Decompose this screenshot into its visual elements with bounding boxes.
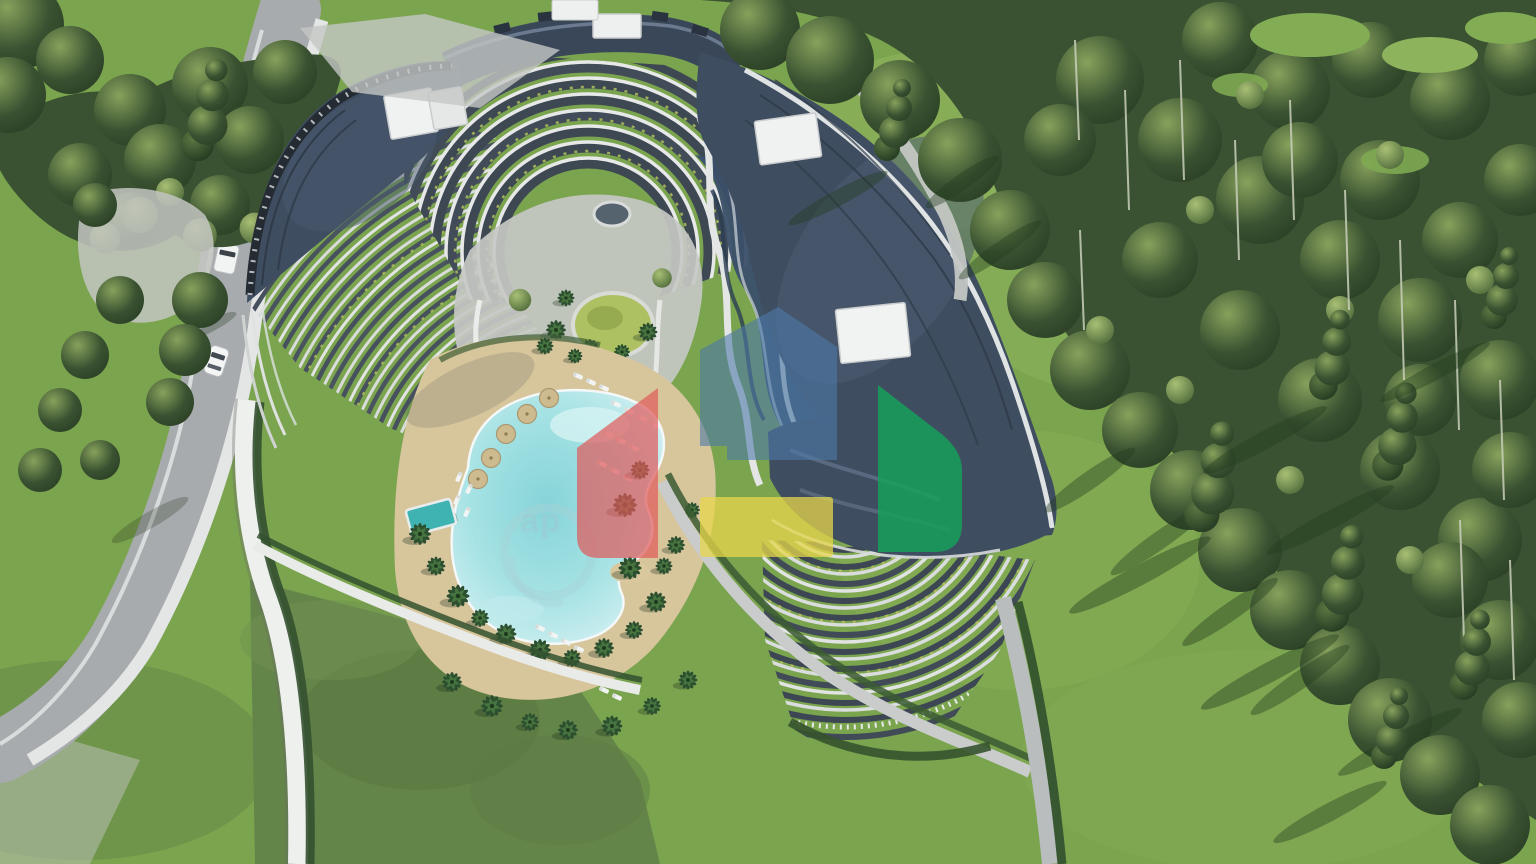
ghost-watermark-text: ap [520, 502, 562, 540]
gazebo [594, 202, 630, 226]
render-image: ap [0, 0, 1536, 864]
scene-svg: ap [0, 0, 1536, 864]
lawn-gap [1250, 13, 1370, 57]
logo-yellow-house [700, 497, 833, 557]
